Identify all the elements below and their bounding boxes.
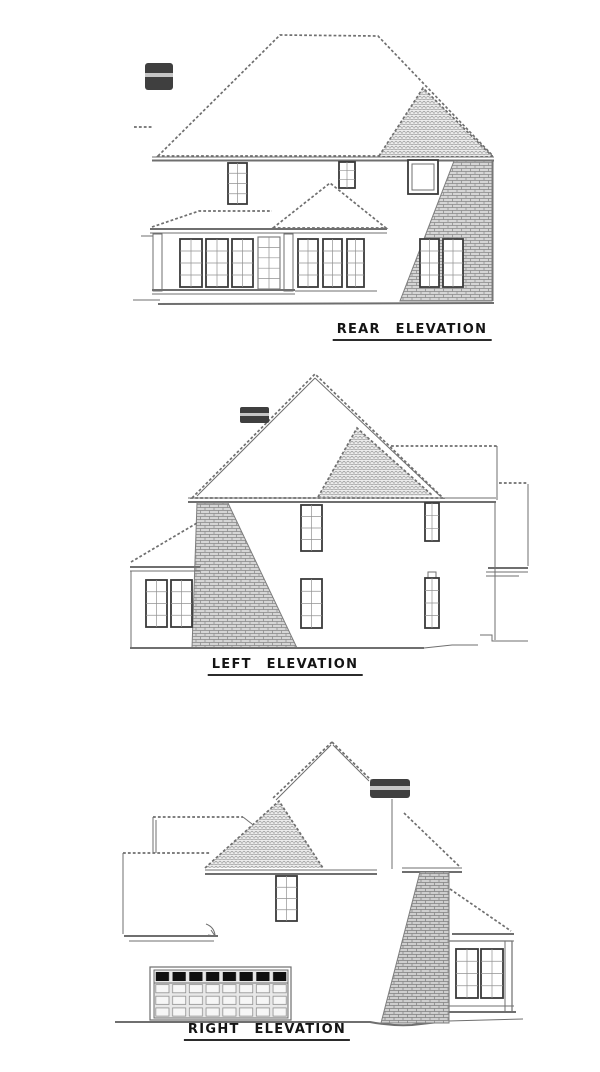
right-second-floor-window bbox=[276, 876, 297, 921]
elevation-sheet: REAR ELEVATION bbox=[0, 0, 600, 1072]
right-rear-wing-outline bbox=[123, 817, 252, 941]
rear-first-floor-windows bbox=[295, 239, 463, 291]
left-ground-line bbox=[130, 635, 528, 648]
rear-elevation-label: REAR ELEVATION bbox=[333, 322, 492, 341]
left-brick-chimney bbox=[192, 503, 297, 648]
right-chimney-cap bbox=[370, 779, 410, 798]
left-elevation-label: LEFT ELEVATION bbox=[208, 657, 363, 676]
left-sunroom-wing bbox=[130, 523, 200, 648]
rear-elevation-drawing bbox=[0, 0, 600, 355]
rear-sunroom bbox=[152, 234, 295, 294]
rear-porch-roof bbox=[141, 183, 387, 236]
right-elevation-drawing bbox=[0, 720, 600, 1050]
garage-door-window-panels bbox=[154, 970, 288, 983]
left-rear-wing bbox=[391, 446, 528, 576]
left-elevation-drawing bbox=[0, 360, 600, 670]
right-brick-chimney bbox=[381, 872, 449, 1023]
rear-chimney-cap bbox=[145, 63, 173, 90]
left-chimney-cap bbox=[240, 407, 269, 423]
left-wall-windows bbox=[301, 503, 439, 628]
right-shingle-roof bbox=[205, 801, 377, 874]
garage-door bbox=[150, 967, 291, 1020]
right-elevation-label: RIGHT ELEVATION bbox=[184, 1022, 350, 1041]
garage-door-panels bbox=[154, 983, 288, 1018]
